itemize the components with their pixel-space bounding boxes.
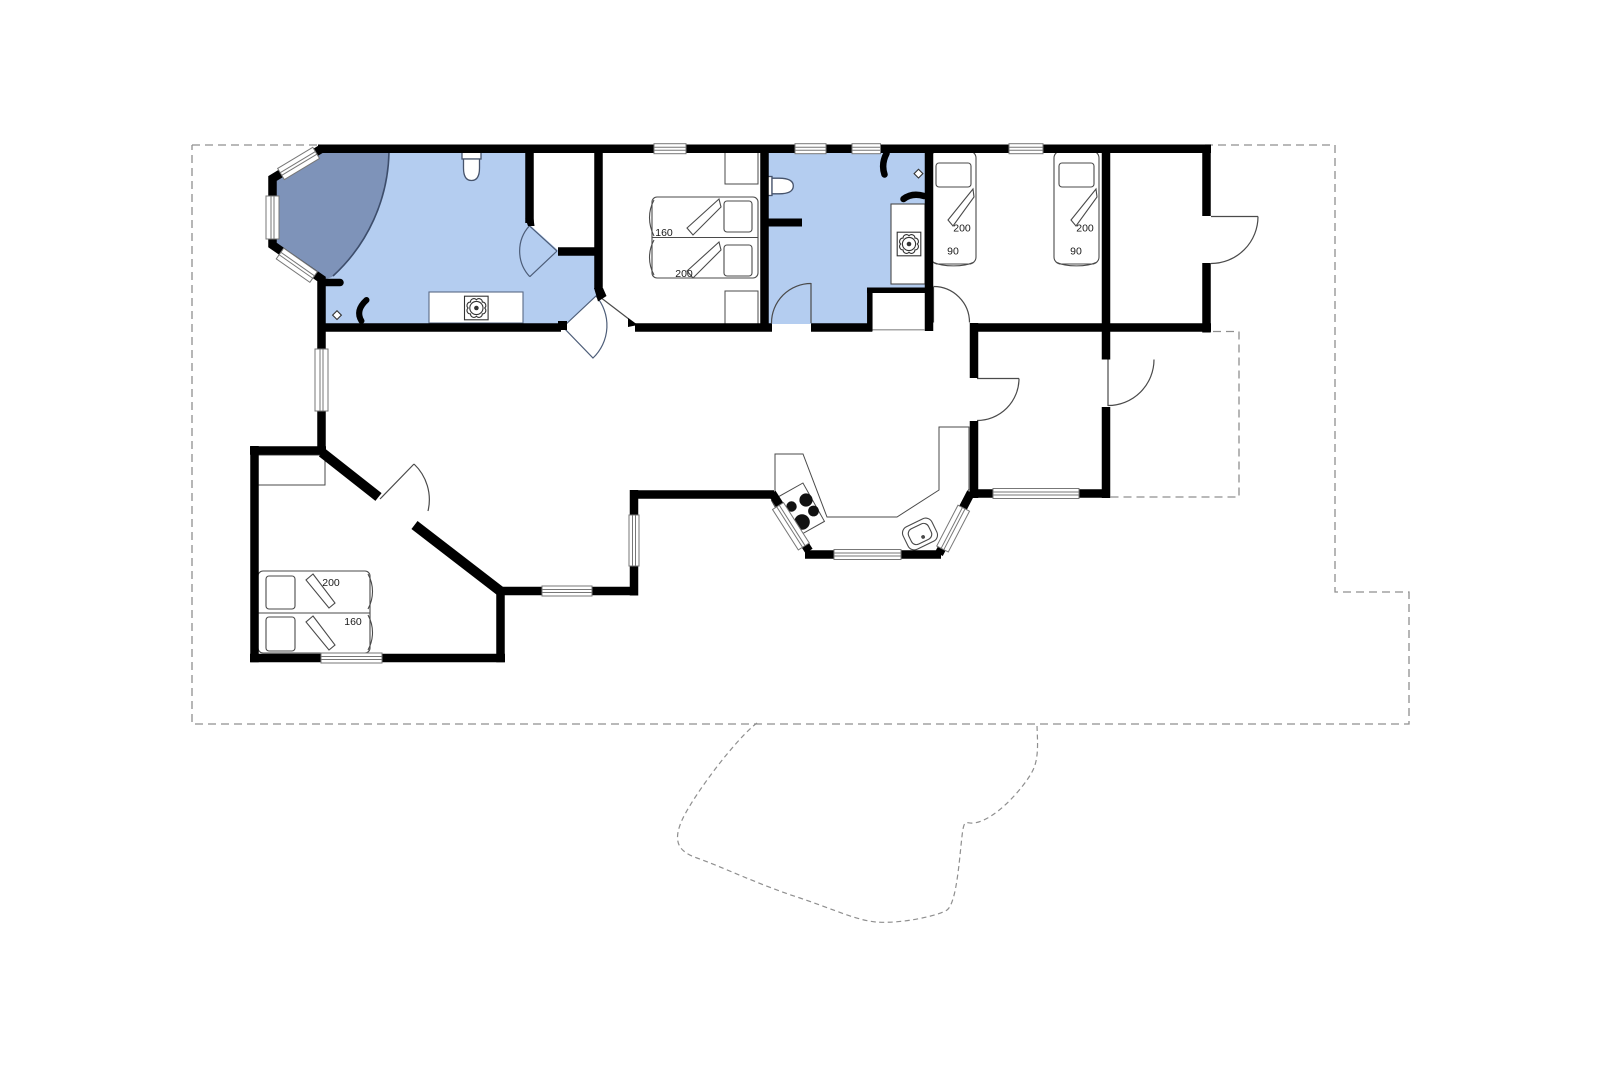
svg-text:200: 200: [322, 577, 340, 589]
svg-text:200: 200: [1076, 223, 1094, 235]
svg-text:160: 160: [655, 227, 673, 239]
svg-text:90: 90: [947, 246, 959, 258]
svg-text:90: 90: [1070, 246, 1082, 258]
svg-text:200: 200: [675, 268, 693, 280]
svg-text:200: 200: [953, 223, 971, 235]
svg-text:160: 160: [344, 616, 362, 628]
